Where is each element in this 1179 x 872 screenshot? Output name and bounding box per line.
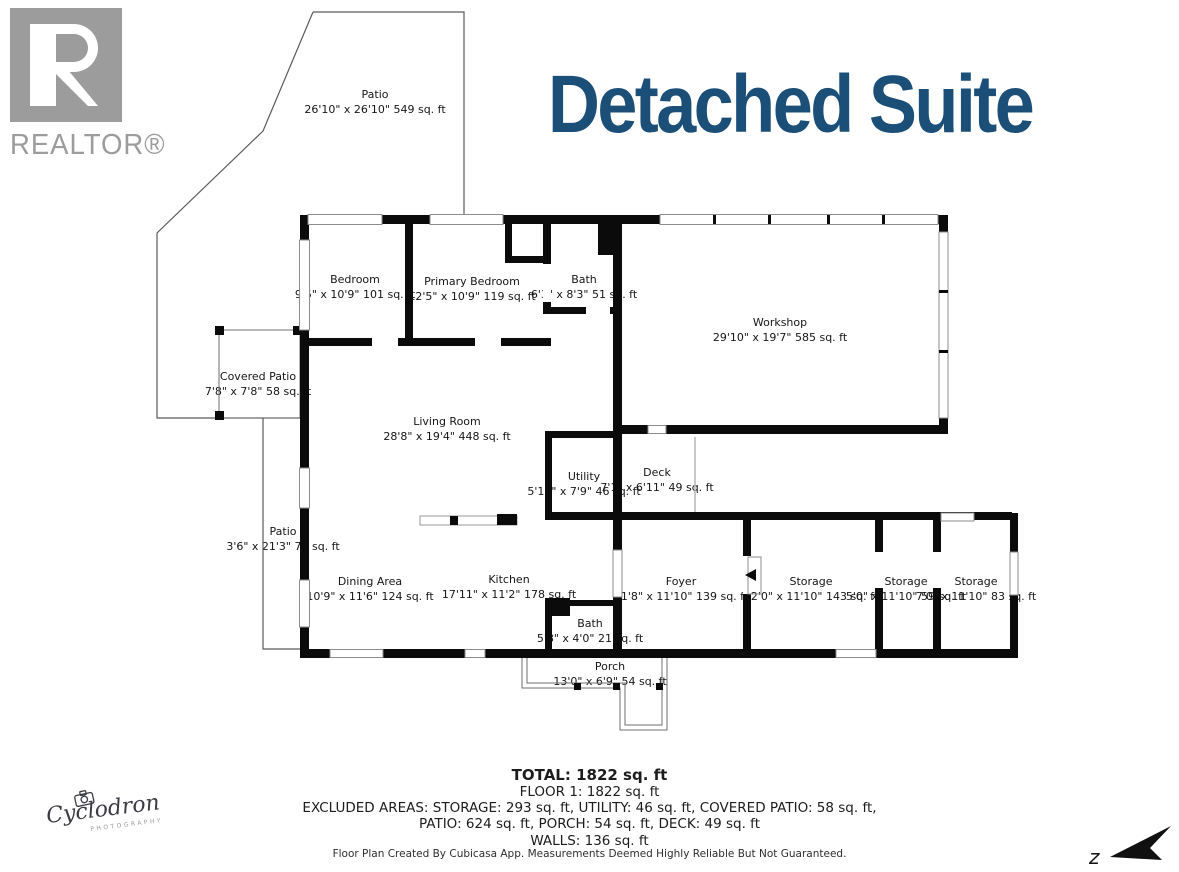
porch-outline — [522, 655, 667, 730]
side-patio-outline — [263, 418, 300, 649]
walls — [300, 215, 1018, 658]
realtor-logo-text: REALTOR® — [10, 129, 172, 162]
photographer-logo: Cyclodron PHOTOGRAPHY — [30, 794, 190, 833]
floor-plan-page: REALTOR® Detached Suite Patio26'10" x 26… — [0, 0, 1179, 872]
covered-patio-outline — [215, 326, 302, 420]
realtor-r-icon — [10, 8, 122, 122]
disclaimer-text: Floor Plan Created By Cubicasa App. Meas… — [0, 848, 1179, 860]
page-title: Detached Suite — [539, 62, 1041, 148]
summary-walls: WALLS: 136 sq. ft — [0, 833, 1179, 849]
summary-total: TOTAL: 1822 sq. ft — [0, 766, 1179, 784]
realtor-logo: REALTOR® — [10, 8, 180, 162]
window-ticks — [713, 215, 948, 353]
